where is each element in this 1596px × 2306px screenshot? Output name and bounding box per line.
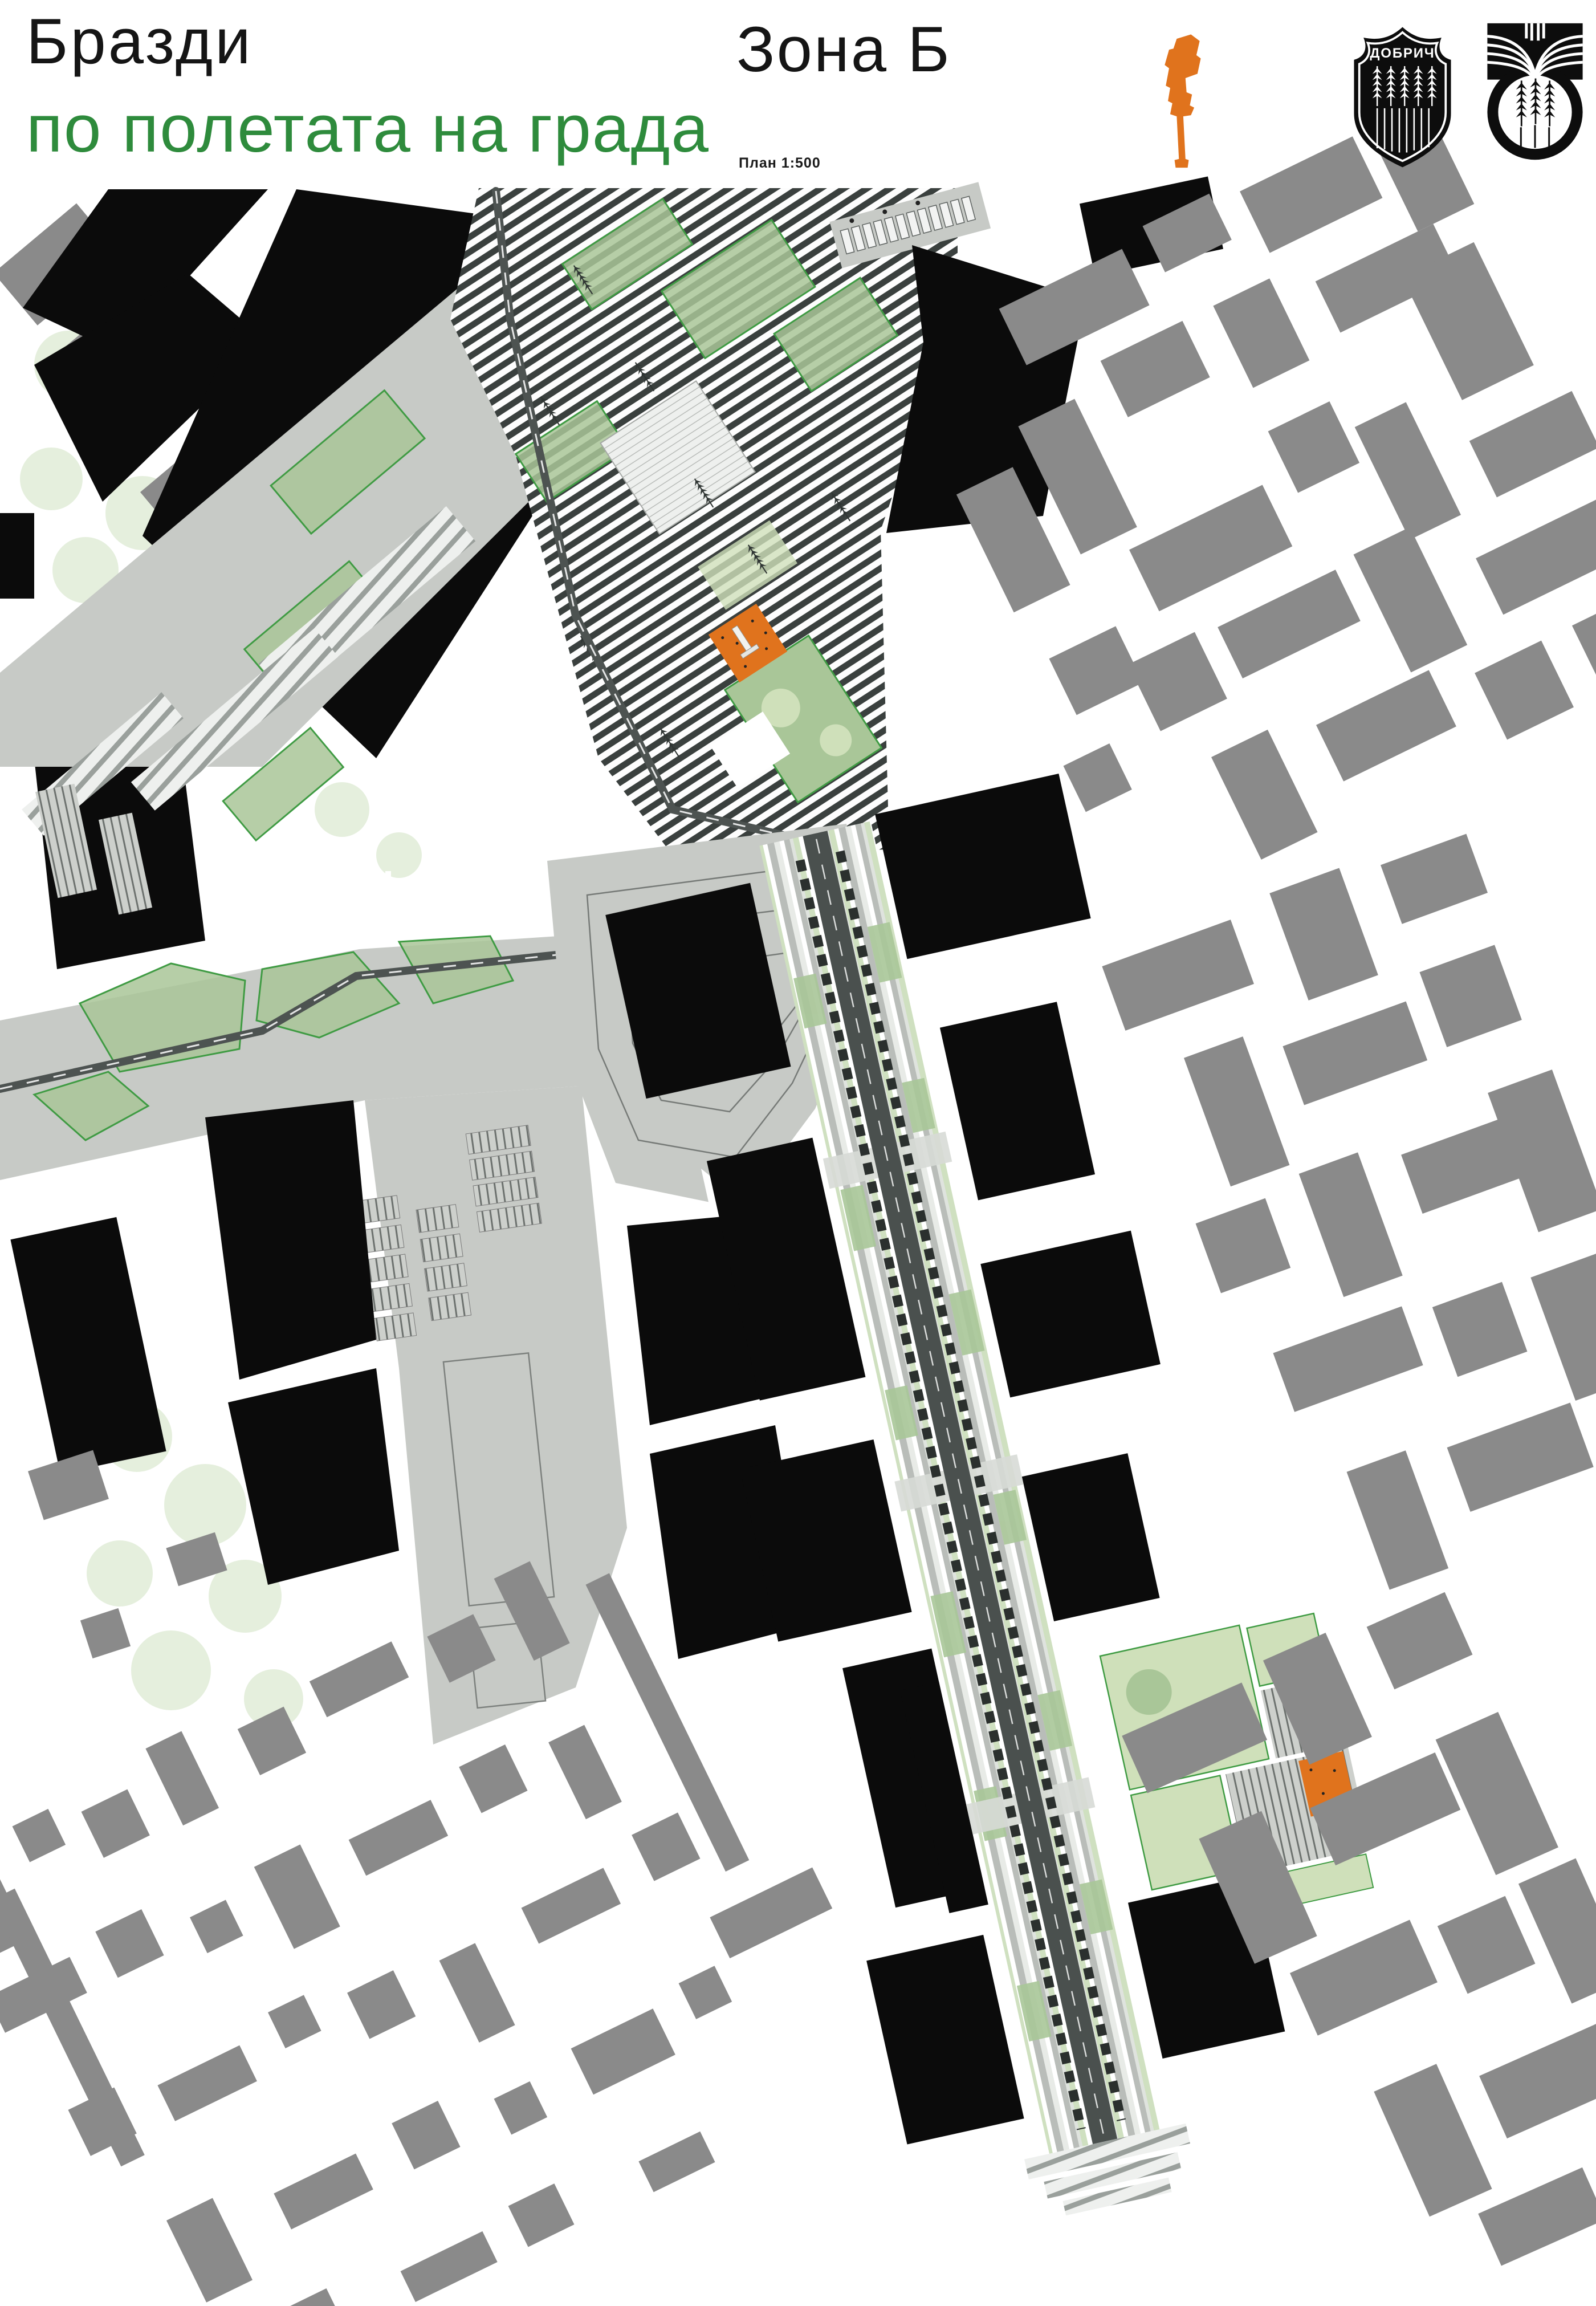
zone-title: Зона Б	[736, 13, 951, 86]
wheat-circle-emblem-icon	[1481, 18, 1589, 177]
dobrich-coat-of-arms-icon: ДОБРИЧ	[1350, 24, 1455, 177]
orange-keyplan-silhouette-icon	[1143, 33, 1208, 176]
scale-note: План 1:500	[739, 155, 821, 172]
emblem-city-name: ДОБРИЧ	[1370, 46, 1435, 61]
urban-plan-map	[0, 0, 1596, 2306]
poster-title-line1: Бразди	[26, 5, 253, 78]
city-fabric-east	[1098, 823, 1596, 1609]
poster-title-line2: по полетата на града	[26, 90, 710, 168]
poster-page: { "poster": { "title_black": "Бразди", "…	[0, 0, 1596, 2306]
